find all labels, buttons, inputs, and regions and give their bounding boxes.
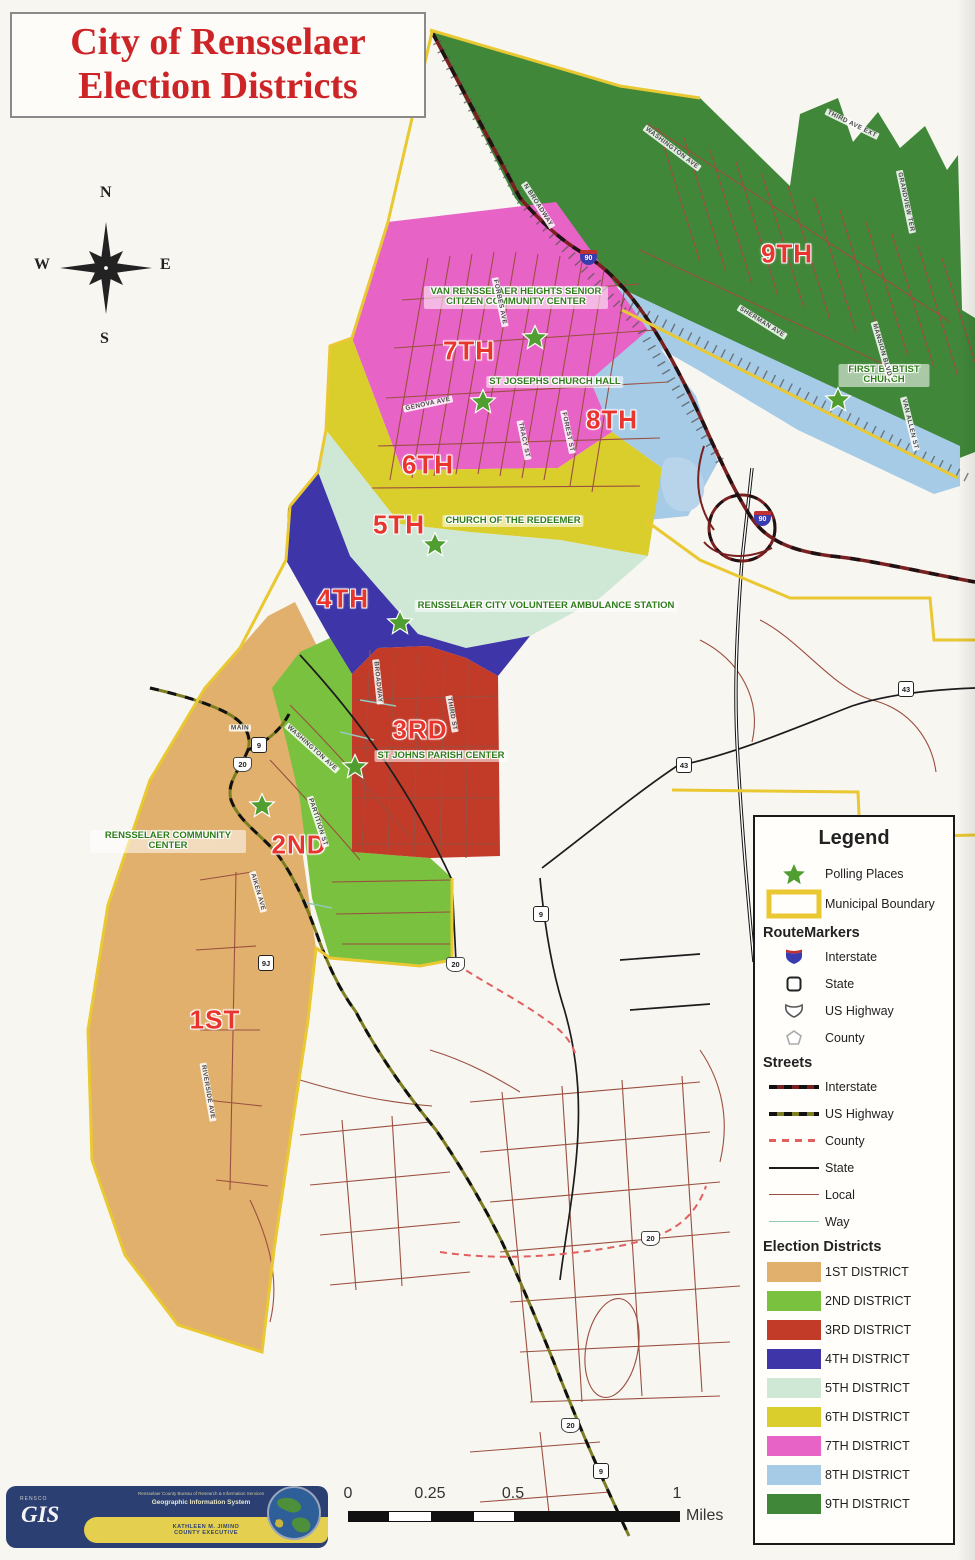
marker-text: 20 <box>451 960 459 969</box>
district-label-8th: 8TH <box>586 405 638 436</box>
compass-west-label: W <box>34 256 50 274</box>
marker-text: 20 <box>646 1234 654 1243</box>
marker-text: 20 <box>238 760 246 769</box>
polling-label-ambulance: RENSSELAER CITY VOLUNTEER AMBULANCE STAT… <box>415 600 678 612</box>
marker-text: 9 <box>257 741 261 750</box>
map-title-line1: City of Rensselaer <box>70 21 365 65</box>
legend-district-3-label: 3RD DISTRICT <box>825 1323 911 1337</box>
legend-street-interstate-label: Interstate <box>825 1080 877 1094</box>
map-title-line2: Election Districts <box>78 65 358 109</box>
street-label: MAIN <box>229 725 251 732</box>
district-label-4th: 4TH <box>317 584 369 615</box>
scale-tick-025: 0.25 <box>414 1485 445 1503</box>
us-route-marker: 20 <box>446 957 465 972</box>
state-square-icon <box>763 975 825 993</box>
legend-district-8-label: 8TH DISTRICT <box>825 1468 910 1482</box>
legend-street-local-label: Local <box>825 1188 855 1202</box>
scale-unit-label: Miles <box>686 1507 723 1525</box>
legend-street-local-row: Local <box>763 1181 945 1208</box>
scale-bar-segments <box>348 1511 680 1522</box>
legend-title: Legend <box>763 827 945 850</box>
polling-label-st-johns: ST JOHNS PARISH CENTER <box>374 750 507 762</box>
legend-district-row: 1ST DISTRICT <box>763 1257 945 1286</box>
state-route-marker: 43 <box>898 681 914 697</box>
district-2-swatch <box>767 1291 821 1311</box>
legend-district-5-label: 5TH DISTRICT <box>825 1381 910 1395</box>
compass-rose: N S W E <box>46 190 166 342</box>
polling-label-redeemer: CHURCH OF THE REDEEMER <box>442 515 583 527</box>
polling-label-community: RENSSELAER COMMUNITY CENTER <box>90 830 246 853</box>
district-7-swatch <box>767 1436 821 1456</box>
scale-bar: 0 0.25 0.5 1 Miles <box>340 1485 720 1535</box>
district-label-7th: 7TH <box>443 336 495 367</box>
legend-routemarkers-heading: RouteMarkers <box>763 925 945 941</box>
legend-district-2-label: 2ND DISTRICT <box>825 1294 911 1308</box>
us-route-marker: 20 <box>641 1231 660 1246</box>
scale-tick-1: 1 <box>673 1485 682 1503</box>
legend-municipal-row: Municipal Boundary <box>763 887 945 921</box>
legend-street-way-row: Way <box>763 1208 945 1235</box>
legend-district-6-label: 6TH DISTRICT <box>825 1410 910 1424</box>
legend: Legend Polling Places Municipal Boundary… <box>753 815 955 1545</box>
us-shield-icon <box>763 1002 825 1019</box>
polling-star-icon <box>763 862 825 886</box>
legend-district-row: 8TH DISTRICT <box>763 1460 945 1489</box>
legend-street-state-label: State <box>825 1161 854 1175</box>
legend-street-way-label: Way <box>825 1215 850 1229</box>
legend-street-state-row: State <box>763 1154 945 1181</box>
divided-highway <box>736 468 754 962</box>
legend-district-4-label: 4TH DISTRICT <box>825 1352 910 1366</box>
map-title-box: City of Rensselaer Election Districts <box>10 12 426 118</box>
state-route-marker: 9 <box>593 1463 609 1479</box>
district-4-swatch <box>767 1349 821 1369</box>
interstate-shield-icon <box>763 948 825 965</box>
us-route-marker: 20 <box>233 757 252 772</box>
legend-district-row: 9TH DISTRICT <box>763 1489 945 1518</box>
district-1-swatch <box>767 1262 821 1282</box>
scale-tick-05: 0.5 <box>502 1485 524 1503</box>
legend-street-us-row: US Highway <box>763 1100 945 1127</box>
district-label-6th: 6TH <box>402 450 454 481</box>
compass-north-label: N <box>100 184 112 202</box>
legend-street-us-label: US Highway <box>825 1107 894 1121</box>
us-route-marker: 20 <box>561 1418 580 1433</box>
interstate-line-icon <box>763 1085 825 1089</box>
us-highway-line-icon <box>763 1112 825 1116</box>
legend-district-row: 4TH DISTRICT <box>763 1344 945 1373</box>
marker-text: 90 <box>585 255 593 262</box>
district-3-swatch <box>767 1320 821 1340</box>
polling-label-st-josephs: ST JOSEPHS CHURCH HALL <box>486 376 623 388</box>
state-route-marker: 9J <box>258 955 274 971</box>
gis-logo-banner: Rensselaer County Bureau of Research & I… <box>6 1486 328 1548</box>
legend-rm-us-label: US Highway <box>825 1004 894 1018</box>
district-8-swatch <box>767 1465 821 1485</box>
district-label-9th: 9TH <box>761 239 813 270</box>
legend-county-marker-row: County <box>763 1024 945 1051</box>
legend-rm-state-label: State <box>825 977 854 991</box>
legend-rm-county-label: County <box>825 1031 865 1045</box>
legend-interstate-marker-row: Interstate <box>763 943 945 970</box>
compass-star-icon <box>46 190 166 342</box>
legend-municipal-label: Municipal Boundary <box>825 897 935 911</box>
legend-district-7-label: 7TH DISTRICT <box>825 1439 910 1453</box>
polling-label-van-rensselaer: VAN RENSSELAER HEIGHTS SENIOR CITIZEN CO… <box>424 286 608 309</box>
district-5-swatch <box>767 1378 821 1398</box>
marker-text: 9 <box>539 910 543 919</box>
legend-streets-heading: Streets <box>763 1055 945 1071</box>
legend-state-marker-row: State <box>763 970 945 997</box>
legend-district-9-label: 9TH DISTRICT <box>825 1497 910 1511</box>
map-page: City of Rensselaer Election Districts N … <box>0 0 975 1560</box>
way-line-icon <box>763 1221 825 1223</box>
legend-district-row: 6TH DISTRICT <box>763 1402 945 1431</box>
marker-text: 20 <box>566 1421 574 1430</box>
county-executive-title: COUNTY EXECUTIVE <box>174 1530 238 1536</box>
legend-district-row: 7TH DISTRICT <box>763 1431 945 1460</box>
county-pentagon-icon <box>763 1029 825 1046</box>
marker-text: 9 <box>599 1467 603 1476</box>
district-label-1st: 1ST <box>190 1005 241 1036</box>
legend-street-county-row: County <box>763 1127 945 1154</box>
state-route-marker: 9 <box>533 906 549 922</box>
legend-rm-interstate-label: Interstate <box>825 950 877 964</box>
legend-district-row: 2ND DISTRICT <box>763 1286 945 1315</box>
state-route-marker: 9 <box>251 737 267 753</box>
legend-district-row: 5TH DISTRICT <box>763 1373 945 1402</box>
county-line-icon <box>763 1139 825 1142</box>
district-label-5th: 5TH <box>373 510 425 541</box>
marker-text: 43 <box>902 685 910 694</box>
district-label-3rd: 3RD <box>392 715 447 746</box>
scale-tick-0: 0 <box>344 1485 353 1503</box>
compass-east-label: E <box>160 256 171 274</box>
state-route-marker: 43 <box>676 757 692 773</box>
legend-polling-row: Polling Places <box>763 860 945 887</box>
legend-us-marker-row: US Highway <box>763 997 945 1024</box>
gis-label: GIS <box>21 1502 59 1528</box>
marker-text: 90 <box>759 516 767 523</box>
compass-south-label: S <box>100 330 109 348</box>
marker-text: 9J <box>262 959 270 968</box>
legend-district-1-label: 1ST DISTRICT <box>825 1265 909 1279</box>
state-line-icon <box>763 1167 825 1169</box>
legend-street-interstate-row: Interstate <box>763 1073 945 1100</box>
globe-icon <box>266 1484 322 1542</box>
legend-districts-heading: Election Districts <box>763 1239 945 1255</box>
local-line-icon <box>763 1194 825 1196</box>
legend-street-county-label: County <box>825 1134 865 1148</box>
marker-text: 43 <box>680 761 688 770</box>
district-9-swatch <box>767 1494 821 1514</box>
municipal-boundary-icon <box>763 889 825 919</box>
legend-polling-label: Polling Places <box>825 867 904 881</box>
legend-district-row: 3RD DISTRICT <box>763 1315 945 1344</box>
district-6-swatch <box>767 1407 821 1427</box>
